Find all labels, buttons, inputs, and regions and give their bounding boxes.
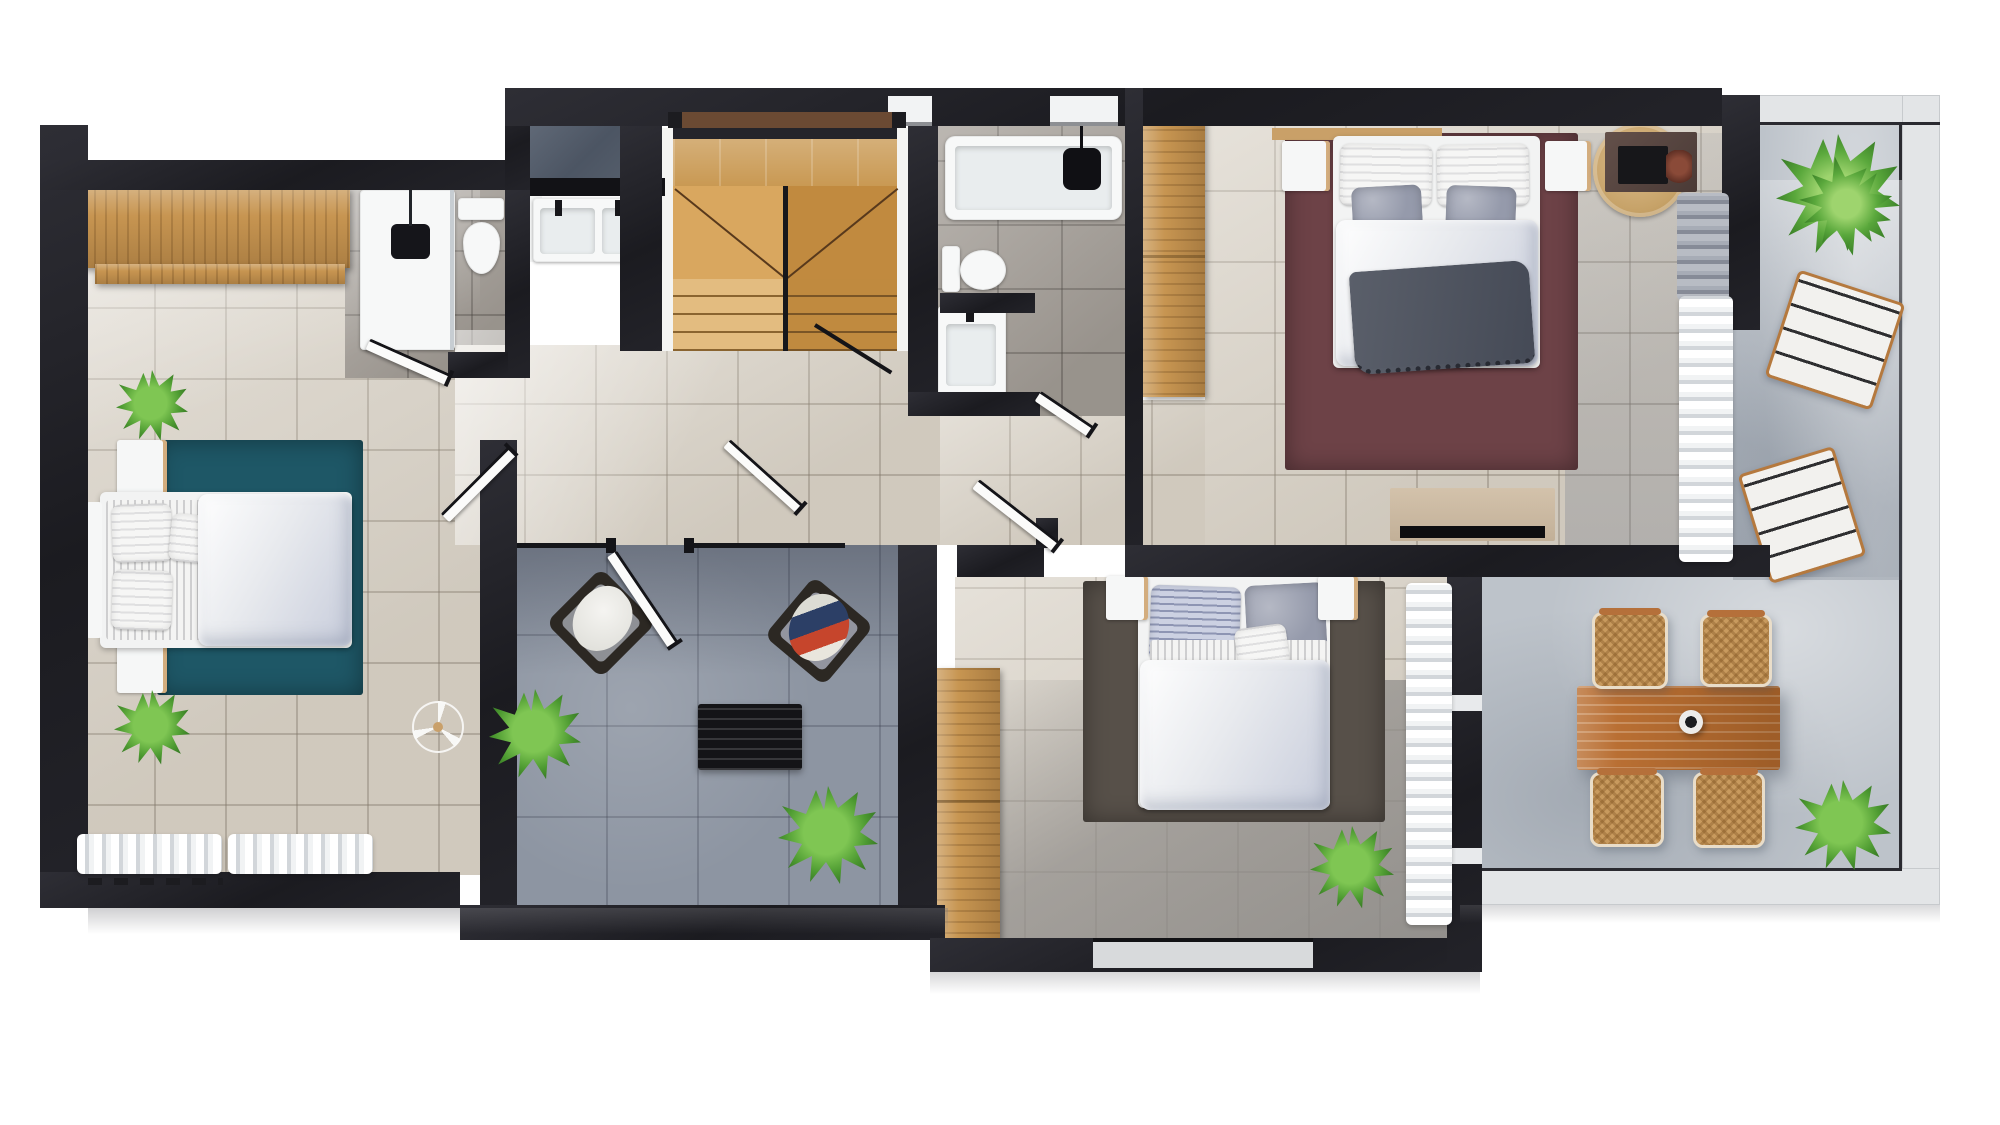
wall-hall-bottom-left <box>957 545 1044 577</box>
hallway-floor <box>455 345 960 545</box>
bedroom3-nightstand-right <box>1318 576 1358 620</box>
toilet1-tank <box>458 198 504 220</box>
wall-bathroom1-bottom <box>448 352 508 378</box>
toilet2-tank <box>942 246 960 292</box>
bedroom1-curtain-2 <box>228 834 373 874</box>
shower-glass-edge <box>450 190 454 350</box>
master-nightstand-left <box>1282 141 1330 191</box>
balcony-glass-post-2 <box>684 538 694 553</box>
wardrobe-bedroom1-shelf <box>95 264 345 284</box>
wardrobe-bedroom1 <box>72 188 350 268</box>
bedroom1-window-dashes <box>88 878 223 885</box>
wardrobe-hall-line <box>1143 255 1205 258</box>
wardrobe-bedroom3-line <box>937 800 1000 803</box>
bathroom1-basin-1 <box>540 208 595 254</box>
bed1-pillow-1 <box>111 503 173 563</box>
wall-left <box>40 125 88 908</box>
wall-stairs-left <box>620 126 662 351</box>
dining-chair-4 <box>1693 772 1765 848</box>
bedroom1-fan <box>412 701 464 753</box>
shower-head-line <box>409 190 412 226</box>
dining-table <box>1577 686 1780 770</box>
wall-hall-bottom <box>1125 545 1770 577</box>
stair-flight-left <box>673 279 785 351</box>
master-curtain-gray <box>1677 193 1729 301</box>
master-laptop <box>1618 146 1668 184</box>
master-desk-plant <box>1666 150 1692 186</box>
wall-balcony-right <box>898 545 937 907</box>
wall-balcony-left <box>480 440 517 908</box>
bedroom1-nightstand-top <box>117 440 167 497</box>
bedroom3-right-window-2 <box>1447 848 1482 864</box>
wall-bathroom2-mid <box>940 293 1035 313</box>
staircase-frame-right <box>897 128 908 351</box>
shower-mat <box>391 224 430 259</box>
master-throw <box>1349 260 1536 375</box>
bed1-duvet <box>198 494 352 646</box>
shower <box>360 190 455 350</box>
building-shadow-bottom-2 <box>930 972 1480 994</box>
wall-bathroom1-right <box>505 190 530 378</box>
bedroom3-right-window-1 <box>1447 695 1482 711</box>
wall-bedroom3-right <box>1447 577 1482 972</box>
wall-center <box>1125 88 1143 577</box>
bed1-pillow-2 <box>111 569 173 631</box>
balcony-glass-left <box>517 543 612 548</box>
floor-plan-canvas <box>0 0 2000 1125</box>
vanity2-basin <box>946 324 996 386</box>
dining-chair-2 <box>1700 614 1772 687</box>
dining-chair-3 <box>1590 772 1664 847</box>
balcony-glass-right <box>690 543 845 548</box>
bathtub-fixture <box>1063 148 1101 190</box>
terrace-parapet-right <box>1902 95 1940 905</box>
wall-bathroom2-bottom <box>908 392 1040 416</box>
terrace-rail-bottom <box>1460 868 1902 871</box>
building-shadow-bottom-3 <box>1460 905 1940 923</box>
wall-bathroom2-left <box>908 126 938 416</box>
bedroom3-nightstand-left <box>1106 576 1148 620</box>
dining-table-vase <box>1679 710 1703 734</box>
stair-divider <box>783 186 788 351</box>
master-tv <box>1400 526 1545 538</box>
balcony-coffee-table <box>698 704 802 770</box>
wardrobe-bedroom3 <box>937 668 1000 940</box>
staircase-landing <box>673 139 897 186</box>
wall-balcony-bottom <box>460 905 945 940</box>
bathroom1-tap-1 <box>555 200 562 216</box>
terrace-rail-right <box>1899 122 1902 871</box>
bedroom3-window-ledge <box>1093 942 1313 968</box>
bedroom3-curtain <box>1406 583 1452 925</box>
master-curtain-white <box>1679 296 1733 562</box>
staircase-frame-left <box>662 128 673 351</box>
toilet2-bowl <box>960 250 1006 290</box>
bedroom1-curtain-1 <box>77 834 222 874</box>
window-top-2-sill <box>1050 122 1118 126</box>
terrace-parapet-bottom <box>1460 868 1940 905</box>
bedroom3-duvet <box>1140 660 1330 810</box>
master-nightstand-right <box>1545 141 1591 191</box>
dining-chair-1 <box>1592 612 1668 689</box>
stair-top-shelf <box>668 112 906 128</box>
wall-top-left <box>40 160 510 190</box>
bed1-headboard <box>86 502 102 638</box>
